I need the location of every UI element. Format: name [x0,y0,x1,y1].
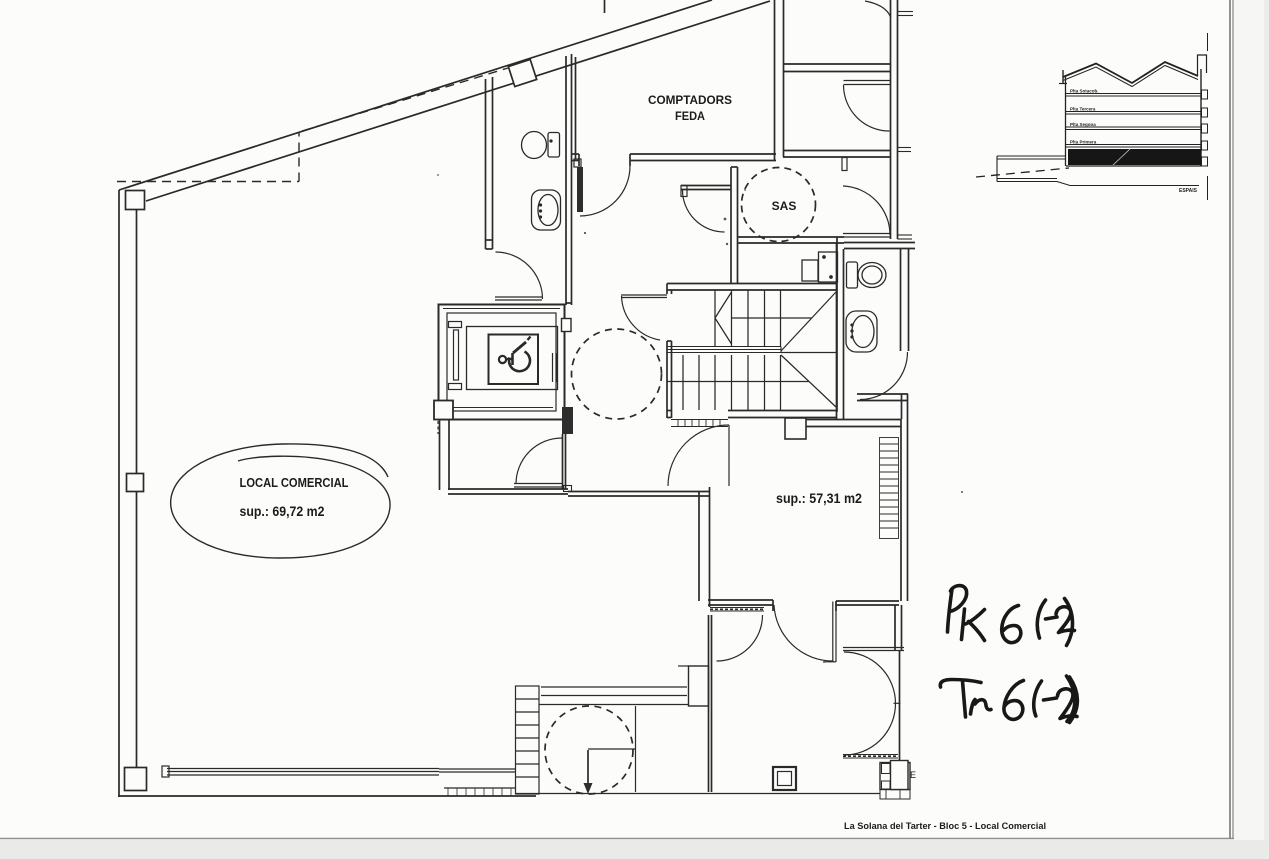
svg-text:COMPTADORS: COMPTADORS [648,93,732,107]
svg-text:Plta Segona: Plta Segona [1070,122,1096,127]
svg-text:La Solana del Tarter - Bloc 5: La Solana del Tarter - Bloc 5 - Local Co… [844,821,1046,832]
svg-text:Plta Tercera: Plta Tercera [1070,107,1096,112]
svg-text:sup.: 57,31 m2: sup.: 57,31 m2 [776,491,862,506]
svg-text:sup.: 69,72 m2: sup.: 69,72 m2 [240,504,325,519]
svg-text:FEDA: FEDA [675,109,705,123]
svg-text:LOCAL COMERCIAL: LOCAL COMERCIAL [240,476,349,490]
svg-text:ESPAIS: ESPAIS [1179,188,1198,194]
svg-text:E: E [910,770,916,780]
svg-text:Plta Primera: Plta Primera [1070,140,1097,145]
svg-text:Plta Sotacob.: Plta Sotacob. [1070,89,1099,94]
svg-text:SAS: SAS [772,199,797,213]
